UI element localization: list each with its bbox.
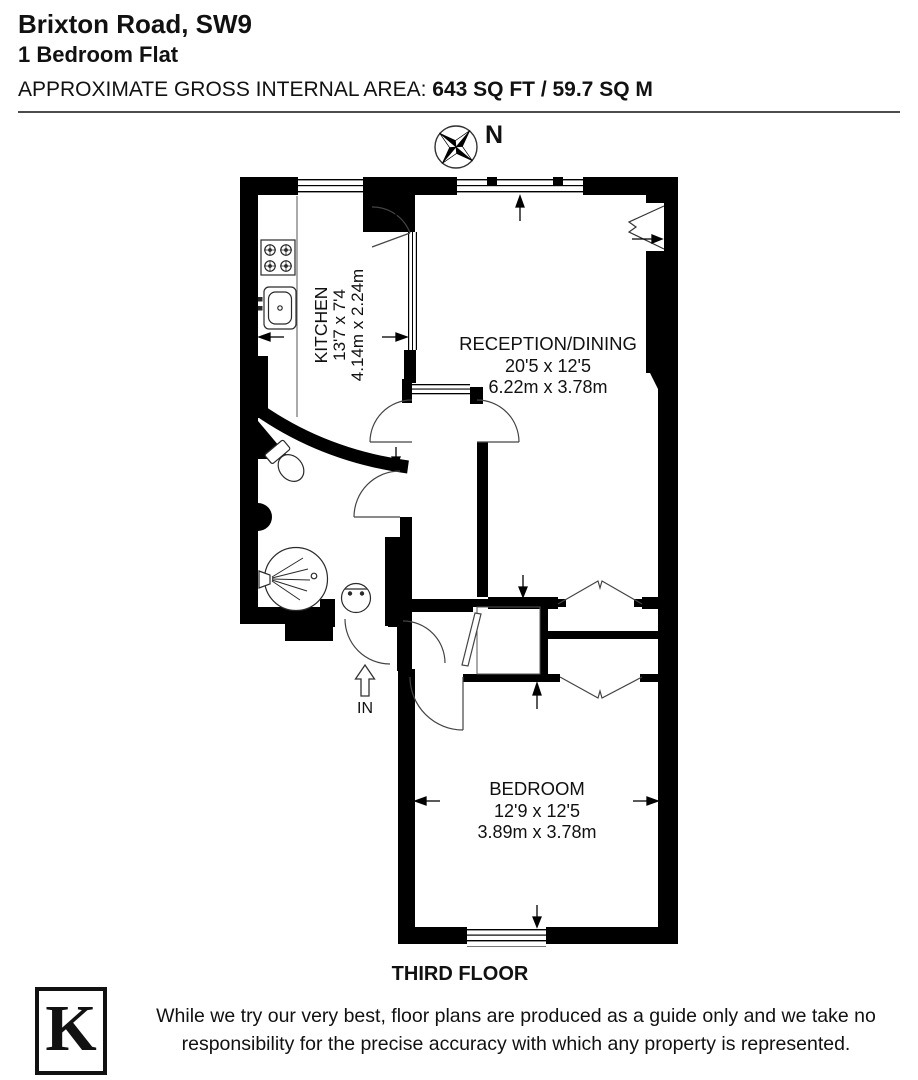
bedroom-dims-imperial: 12'9 x 12'5	[494, 801, 580, 821]
reception-dims-metric: 6.22m x 3.78m	[488, 377, 607, 397]
hall-closet	[462, 607, 540, 674]
area-label: APPROXIMATE GROSS INTERNAL AREA:	[18, 78, 426, 101]
disclaimer-text: While we try our very best, floor plans …	[131, 1003, 901, 1058]
page-title: Brixton Road, SW9	[18, 10, 900, 40]
floor-plan-drawing: N	[0, 113, 918, 985]
gross-internal-area: APPROXIMATE GROSS INTERNAL AREA: 643 SQ …	[18, 78, 900, 102]
fixtures	[258, 196, 371, 613]
footer: K While we try our very best, floor plan…	[35, 987, 918, 1075]
brand-logo-letter: K	[45, 996, 96, 1062]
bedroom-dims-metric: 3.89m x 3.78m	[477, 822, 596, 842]
bathroom-door	[354, 471, 400, 517]
stove-icon	[261, 240, 295, 275]
compass-rose-icon: N	[426, 117, 503, 176]
wall-bump	[258, 503, 272, 531]
arrow-left	[259, 333, 284, 341]
floorplan-page: Brixton Road, SW9 1 Bedroom Flat APPROXI…	[0, 0, 918, 1080]
arrow-left	[415, 797, 440, 805]
room-labels: KITCHEN 13'7 x 7'4 4.14m x 2.24m RECEPTI…	[311, 269, 637, 842]
brand-logo: K	[35, 987, 107, 1075]
hall-window	[412, 383, 470, 395]
entrance-marker: IN	[356, 665, 375, 717]
bay-window	[629, 203, 664, 251]
closet-bifold-doors-top	[558, 581, 642, 604]
glazed-partition	[408, 232, 417, 350]
page-subtitle: 1 Bedroom Flat	[18, 43, 900, 67]
basin-icon	[342, 584, 371, 613]
bedroom-name: BEDROOM	[489, 778, 585, 799]
hall-double-doors	[370, 400, 519, 442]
reception-dims-imperial: 20'5 x 12'5	[505, 356, 591, 376]
bedroom-door	[410, 677, 463, 730]
arrow-down	[533, 905, 541, 927]
header: Brixton Road, SW9 1 Bedroom Flat APPROXI…	[0, 0, 918, 102]
area-value: 643 SQ FT / 59.7 SQ M	[432, 78, 653, 101]
kitchen-sink-icon	[258, 287, 296, 329]
arrow-right	[633, 797, 658, 805]
north-label: N	[485, 121, 503, 149]
arrow-up	[533, 683, 541, 709]
entrance-arrow-icon	[356, 665, 375, 696]
kitchen-window	[298, 177, 363, 195]
floor-label: THIRD FLOOR	[392, 963, 529, 985]
kitchen-dims-imperial: 13'7 x 7'4	[330, 289, 349, 361]
kitchen-name: KITCHEN	[311, 287, 331, 364]
entrance-door	[345, 619, 390, 664]
kitchen-dims-metric: 4.14m x 2.24m	[348, 269, 367, 381]
shower-icon	[259, 548, 328, 611]
arrow-down	[519, 575, 527, 597]
reception-name: RECEPTION/DINING	[459, 333, 637, 354]
closet-bifold-doors-bottom	[560, 677, 642, 698]
arrow-up	[516, 196, 524, 221]
arrow-right	[382, 333, 407, 341]
entrance-label: IN	[357, 700, 373, 717]
bedroom-window	[467, 927, 546, 947]
reception-window	[457, 177, 583, 195]
